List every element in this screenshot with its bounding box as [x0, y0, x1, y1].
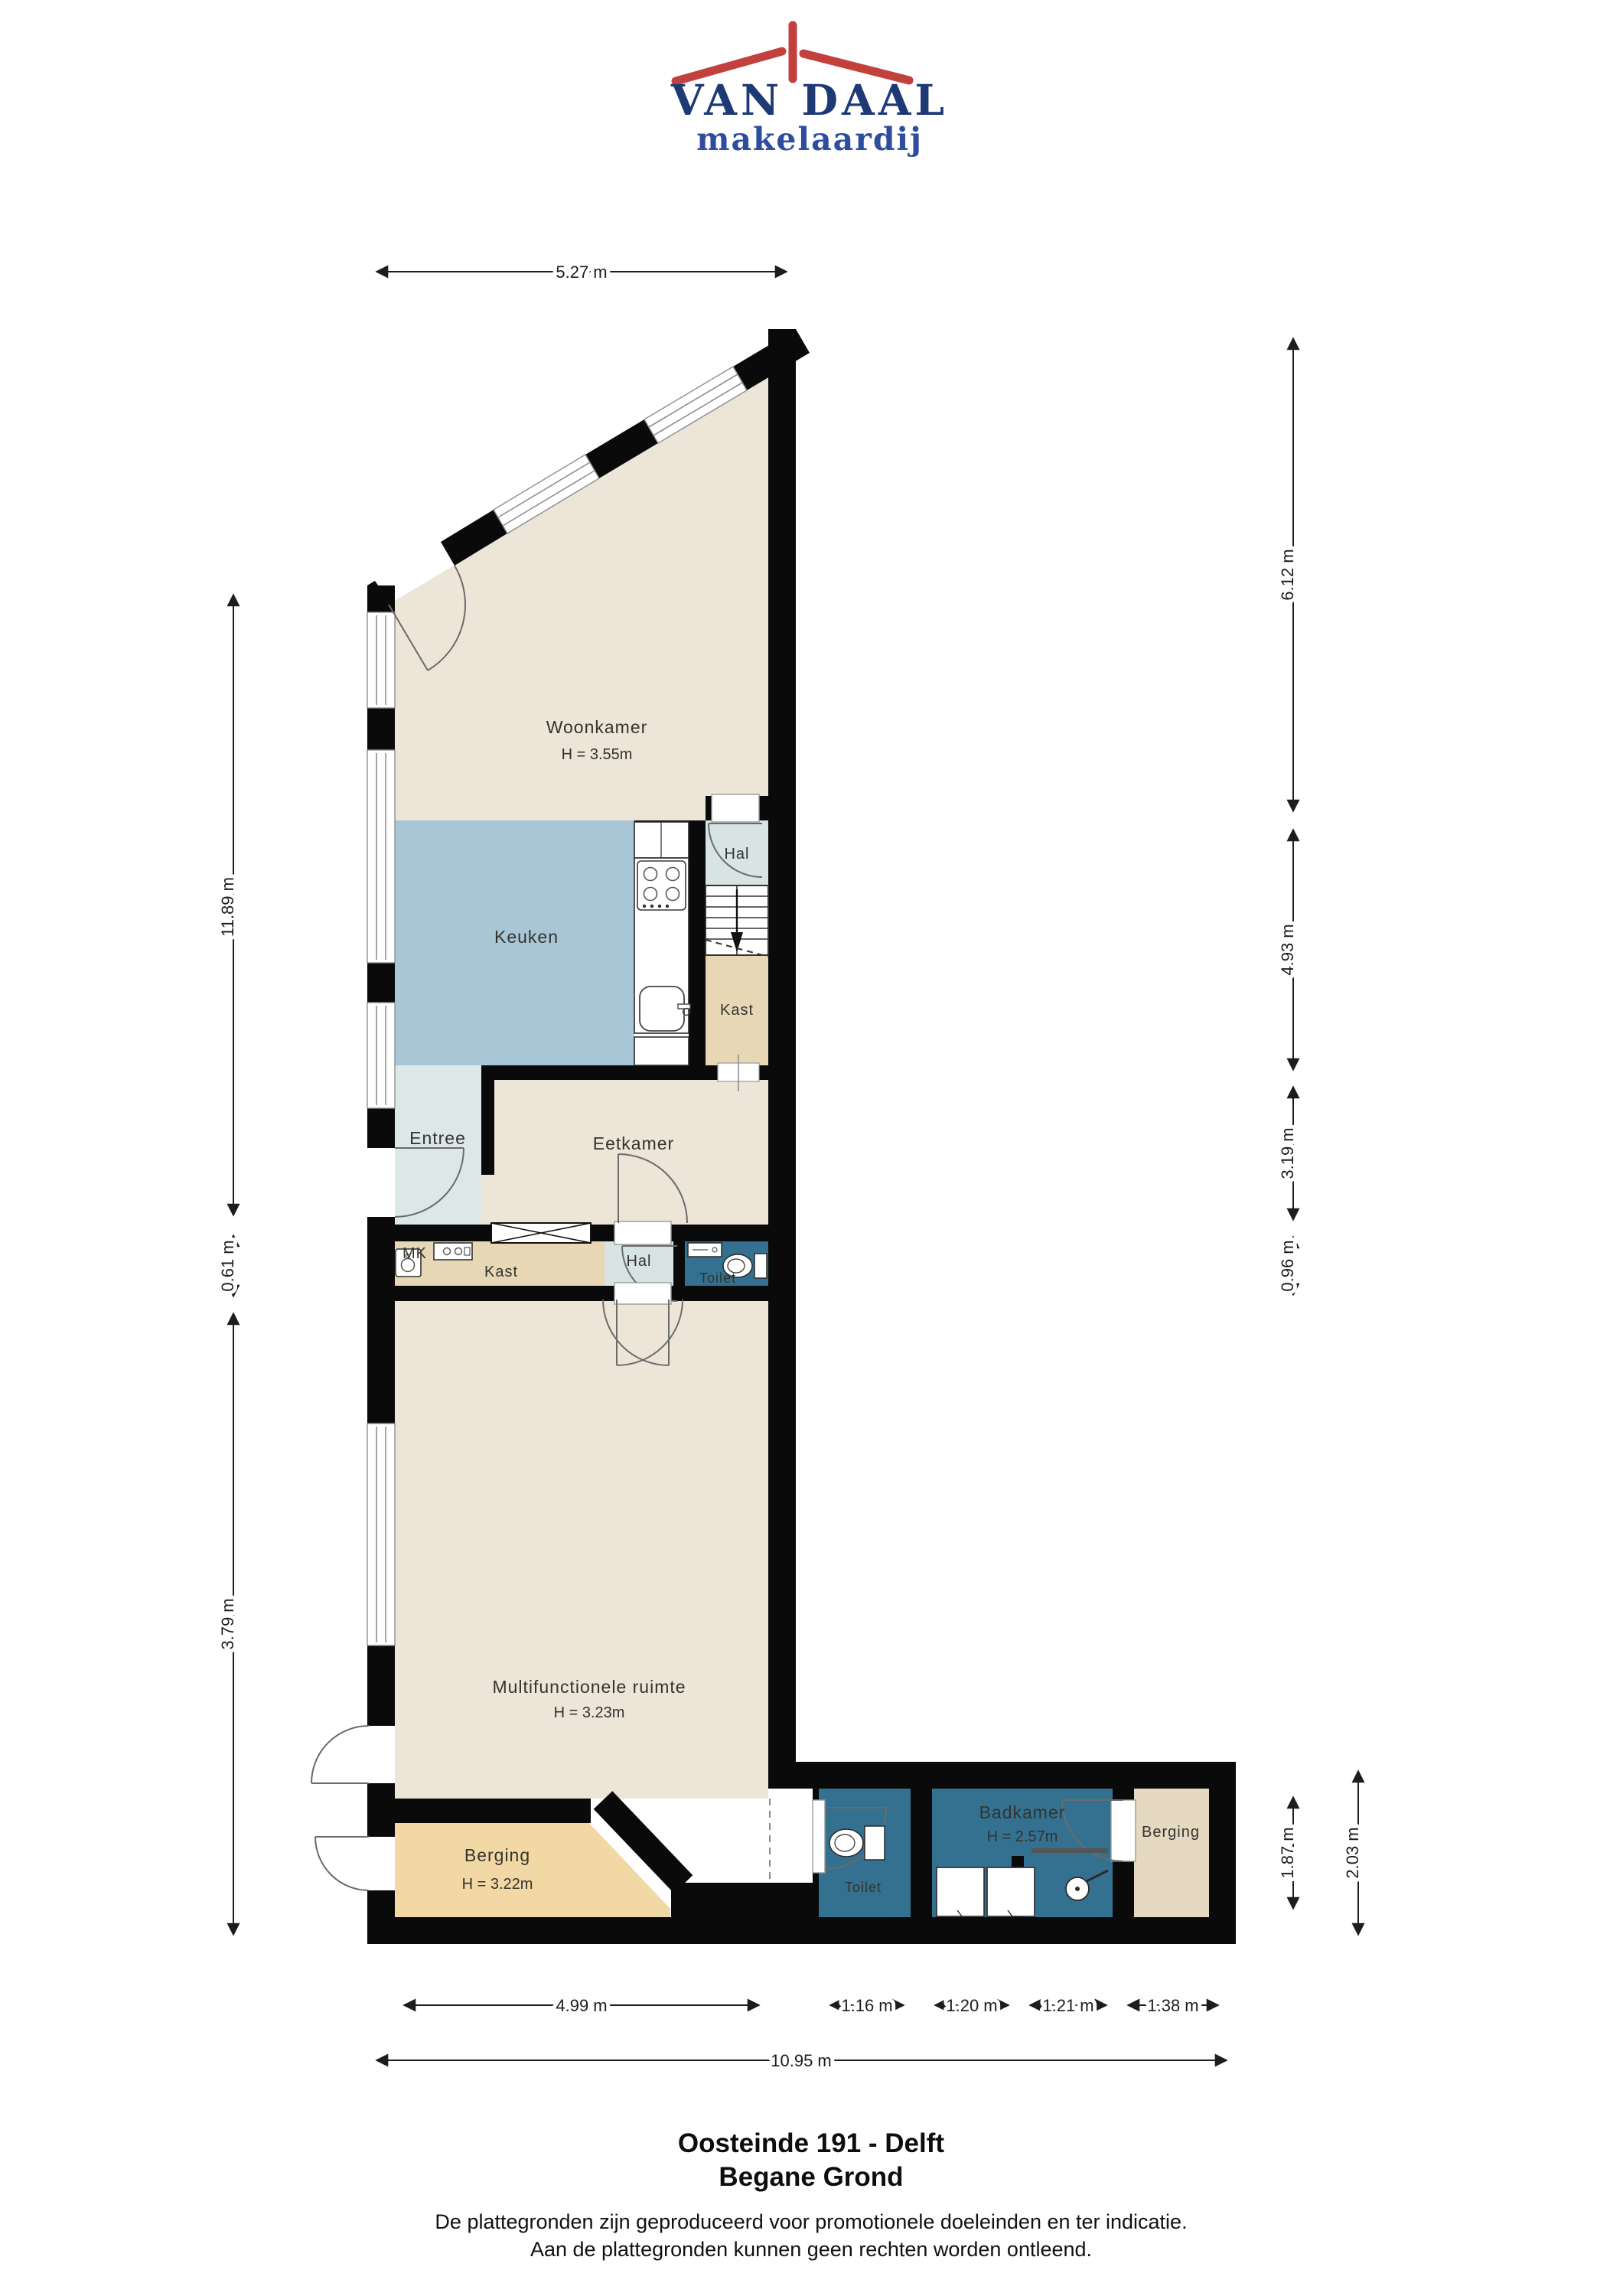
logo-subtitle: makelaardij [696, 121, 923, 158]
washer-icon [937, 1867, 984, 1916]
label-multifunctionele-ruimte-height: H = 3.23m [554, 1704, 625, 1721]
window-icon [367, 750, 395, 963]
label-kast-midden: Kast [484, 1264, 518, 1280]
label-multifunctionele-ruimte: Multifunctionele ruimte [492, 1677, 686, 1697]
dim-right-3: 0.96 m [1278, 1240, 1297, 1291]
window-icon [367, 1424, 395, 1645]
label-woonkamer: Woonkamer [546, 717, 648, 737]
door-multifunctioneel-buiten [311, 1726, 369, 1783]
floorplan-page: VAN DAAL makelaardij [0, 0, 1623, 2296]
stairs-icon [706, 885, 768, 957]
roof-icon [676, 25, 909, 81]
label-hal-midden: Hal [626, 1253, 651, 1270]
dim-top: 5.27 m [556, 263, 607, 282]
label-eetkamer: Eetkamer [593, 1133, 674, 1153]
dim-bottom-1: 1.16 m [841, 1996, 892, 2015]
label-keuken: Keuken [494, 927, 559, 947]
label-berging-links-height: H = 3.22m [462, 1876, 533, 1893]
dim-bottom-4: 1.38 m [1147, 1996, 1198, 2015]
footer-address: Oosteinde 191 - Delft [678, 2128, 944, 2158]
footer-disclaimer-2: Aan de plattegronden kunnen geen rechten… [530, 2238, 1092, 2261]
label-toilet-midden: Toilet [699, 1270, 736, 1286]
dim-wing-0: 1.87 m [1278, 1827, 1297, 1878]
label-toilet-onder: Toilet [845, 1880, 882, 1895]
meterkast-icon [434, 1243, 472, 1260]
label-hal-boven: Hal [724, 846, 749, 863]
label-berging-rechts: Berging [1142, 1824, 1200, 1841]
sink-icon [640, 987, 690, 1031]
dim-left-2: 3.79 m [218, 1598, 237, 1649]
logo-title: VAN DAAL [670, 75, 948, 125]
vandaal-logo: VAN DAAL makelaardij [670, 25, 948, 158]
dim-right-2: 3.19 m [1278, 1127, 1297, 1179]
label-mk: MK [402, 1245, 427, 1262]
footer-disclaimer-1: De plattegronden zijn geproduceerd voor … [435, 2210, 1187, 2233]
dryer-icon [987, 1867, 1035, 1916]
footer-floor: Begane Grond [719, 2162, 903, 2192]
dim-left-1: 0.61 m [218, 1240, 237, 1291]
dim-left-0: 11.89 m [218, 877, 237, 937]
dim-bottom-total: 10.95 m [771, 2051, 832, 2070]
dim-bottom-0: 4.99 m [556, 1996, 607, 2015]
dim-right-1: 4.93 m [1278, 924, 1297, 975]
dim-wing-1: 2.03 m [1343, 1827, 1362, 1878]
kitchen-counter [634, 822, 690, 1065]
label-berging-links: Berging [464, 1845, 530, 1865]
window-icon [367, 612, 395, 708]
dim-bottom-2: 1.20 m [946, 1996, 997, 2015]
dim-right-0: 6.12 m [1278, 549, 1297, 600]
dim-bottom-3: 1.21 m [1042, 1996, 1093, 2015]
cabinet-cross-icon [491, 1223, 591, 1243]
label-kast-trap: Kast [720, 1002, 754, 1019]
label-entree: Entree [409, 1128, 466, 1148]
label-woonkamer-height: H = 3.55m [562, 746, 633, 763]
window-icon [367, 1003, 395, 1108]
door-berging-buiten [315, 1837, 369, 1890]
room-berging-rechts [1134, 1789, 1209, 1917]
label-badkamer: Badkamer [979, 1802, 1066, 1822]
stove-icon [637, 861, 686, 910]
room-multifunctionele-ruimte [395, 1301, 768, 1799]
label-badkamer-height: H = 2.57m [987, 1828, 1058, 1845]
